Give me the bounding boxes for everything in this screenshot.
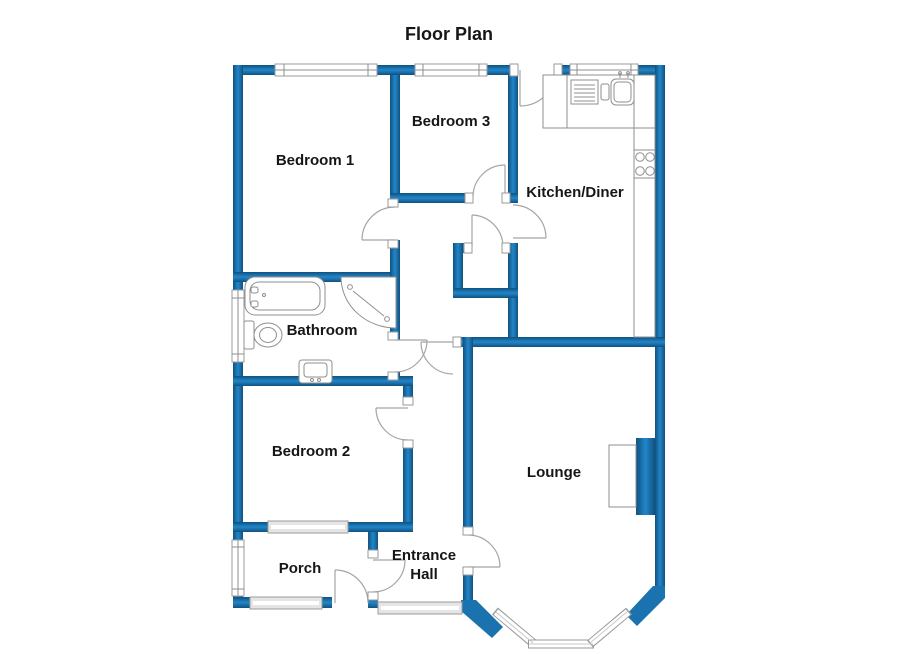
door-bedroom1	[362, 207, 395, 240]
door-porch-hall	[373, 560, 405, 592]
worktop	[634, 75, 655, 337]
window-entrance-hall	[378, 602, 462, 614]
window-bedroom2	[268, 521, 348, 533]
room-label-bedroom-1: Bedroom 1	[276, 152, 354, 169]
floor-plan-page: Floor Plan Bedroom 1 Bedroom 3 Kitchen/D…	[0, 0, 900, 654]
door-bedroom3	[473, 165, 505, 197]
window-bedroom1	[275, 64, 377, 76]
fireplace	[636, 438, 655, 515]
door-bedroom2	[376, 408, 408, 440]
bay-corner-right	[626, 586, 665, 626]
floor-plan-canvas: Floor Plan Bedroom 1 Bedroom 3 Kitchen/D…	[0, 0, 900, 654]
kitchen-sink	[543, 72, 635, 128]
fixtures	[244, 72, 655, 507]
door-kitchen	[513, 205, 546, 238]
room-label-kitchen-diner: Kitchen/Diner	[526, 184, 624, 201]
wash-basin	[299, 360, 332, 383]
room-label-entrance-hall-line2: Hall	[410, 566, 438, 583]
room-label-bedroom-3: Bedroom 3	[412, 113, 490, 130]
door-front	[335, 570, 368, 603]
room-label-porch: Porch	[279, 560, 322, 577]
room-label-bedroom-2: Bedroom 2	[272, 443, 350, 460]
shower-tray	[341, 277, 396, 328]
window-bathroom	[232, 290, 244, 362]
window-porch-side	[232, 540, 244, 596]
room-label-lounge: Lounge	[527, 464, 581, 481]
room-label-bathroom: Bathroom	[287, 322, 358, 339]
bay-corner-left	[461, 600, 503, 638]
hearth	[609, 445, 636, 507]
draining-board	[571, 80, 598, 104]
window-porch-front	[250, 597, 322, 609]
room-label-entrance-hall-line1: Entrance	[392, 547, 456, 564]
door-lounge	[468, 535, 500, 567]
door-bathroom	[395, 340, 427, 372]
bay-window	[495, 611, 629, 644]
door-cupboard	[472, 215, 503, 247]
hob	[634, 150, 655, 178]
page-title: Floor Plan	[405, 24, 493, 44]
toilet	[244, 321, 282, 349]
bathtub	[245, 277, 325, 315]
window-bedroom3	[415, 64, 487, 76]
